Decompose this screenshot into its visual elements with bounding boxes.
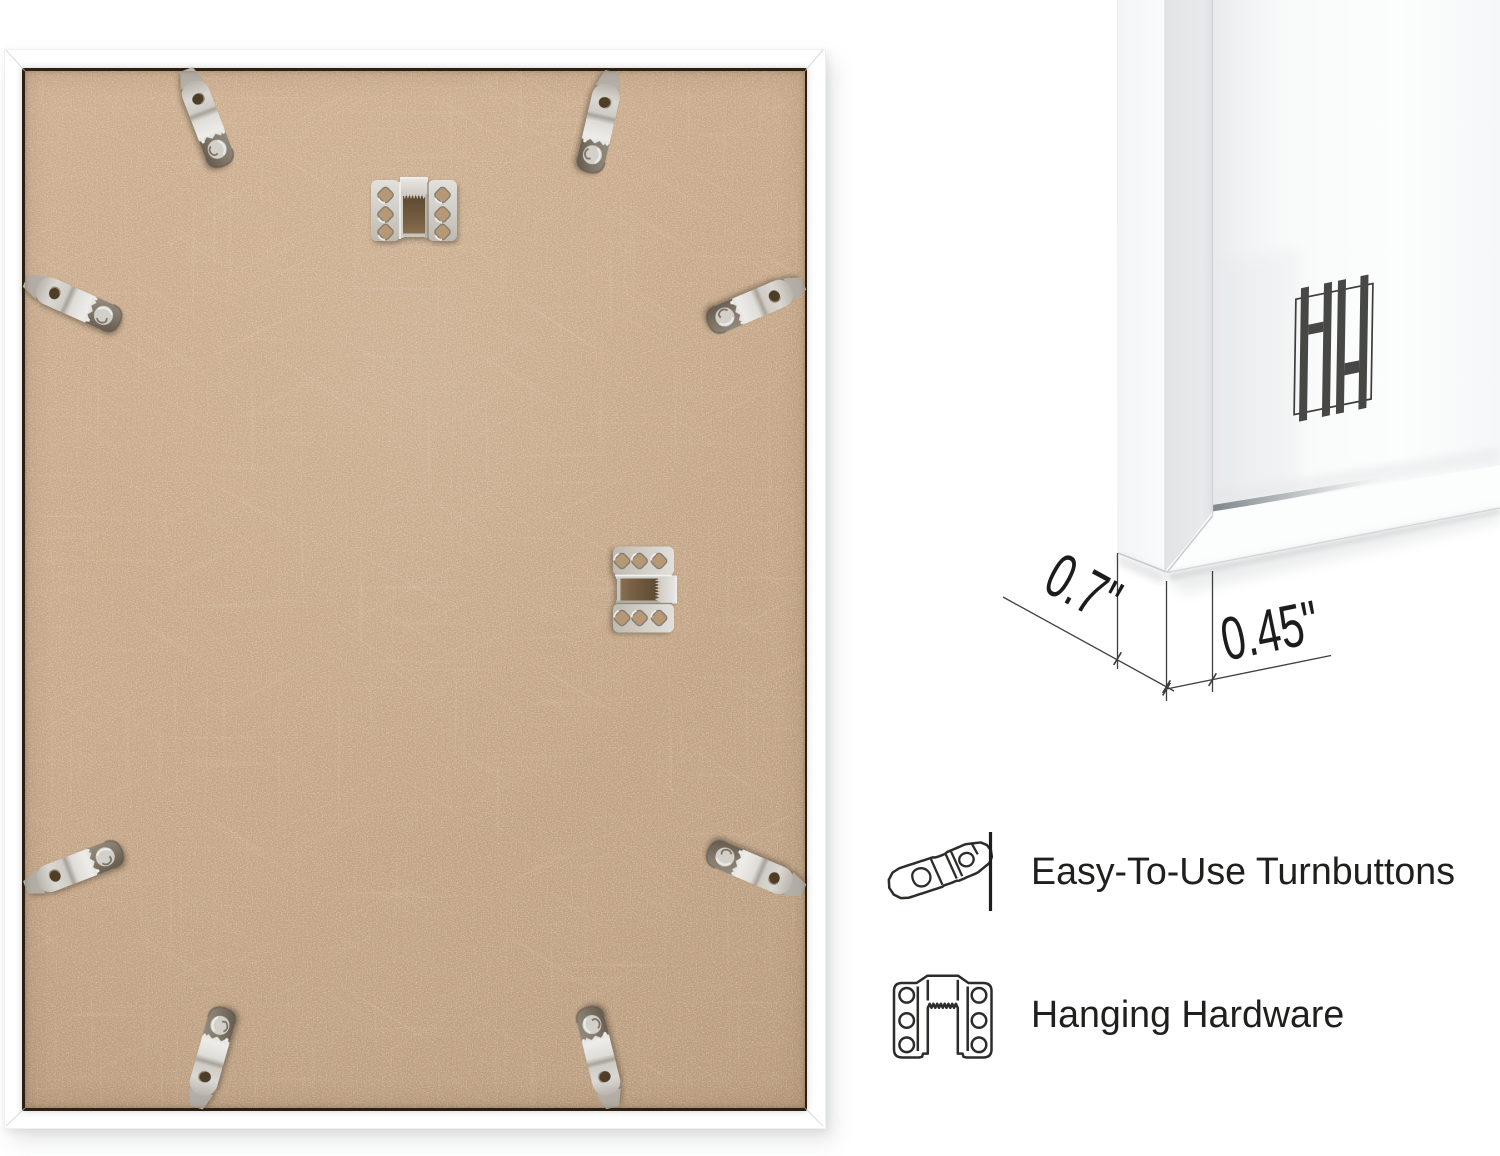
svg-text:0.45": 0.45": [1215, 588, 1325, 675]
